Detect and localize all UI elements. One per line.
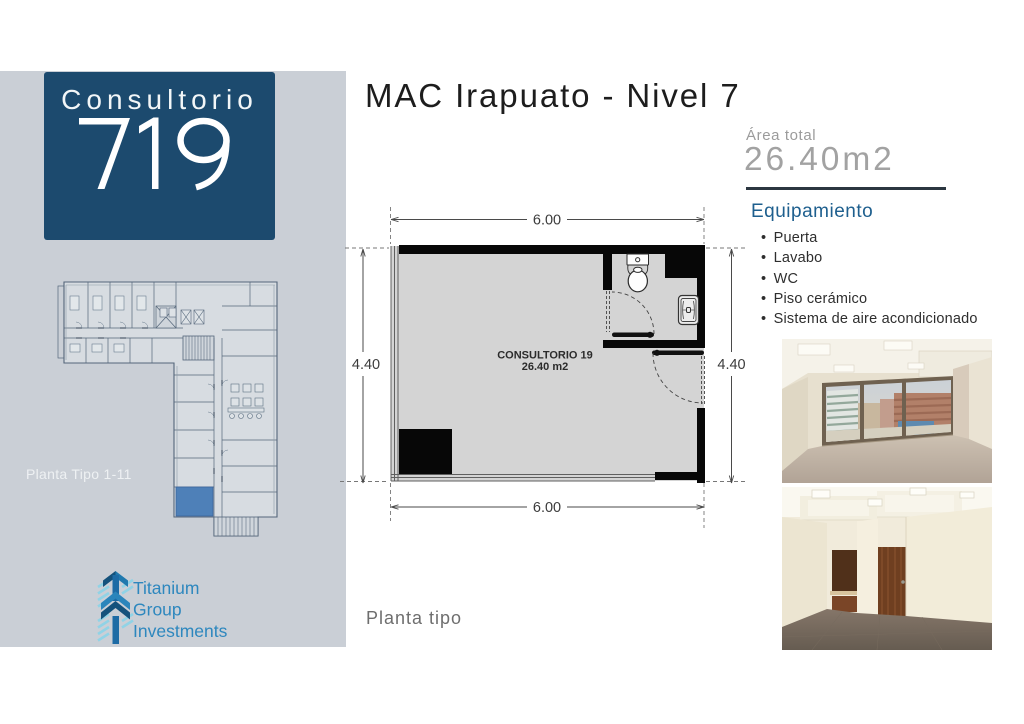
svg-text:4.40: 4.40 [352, 357, 380, 373]
svg-text:4.40: 4.40 [717, 357, 745, 373]
svg-text:Investments: Investments [133, 621, 228, 641]
svg-text:CONSULTORIO 19: CONSULTORIO 19 [497, 350, 593, 362]
svg-text:26.40 m2: 26.40 m2 [522, 361, 568, 373]
svg-text:Group: Group [133, 600, 182, 620]
svg-text:6.00: 6.00 [533, 500, 561, 516]
svg-text:6.00: 6.00 [533, 213, 561, 229]
svg-text:Titanium: Titanium [133, 578, 199, 598]
